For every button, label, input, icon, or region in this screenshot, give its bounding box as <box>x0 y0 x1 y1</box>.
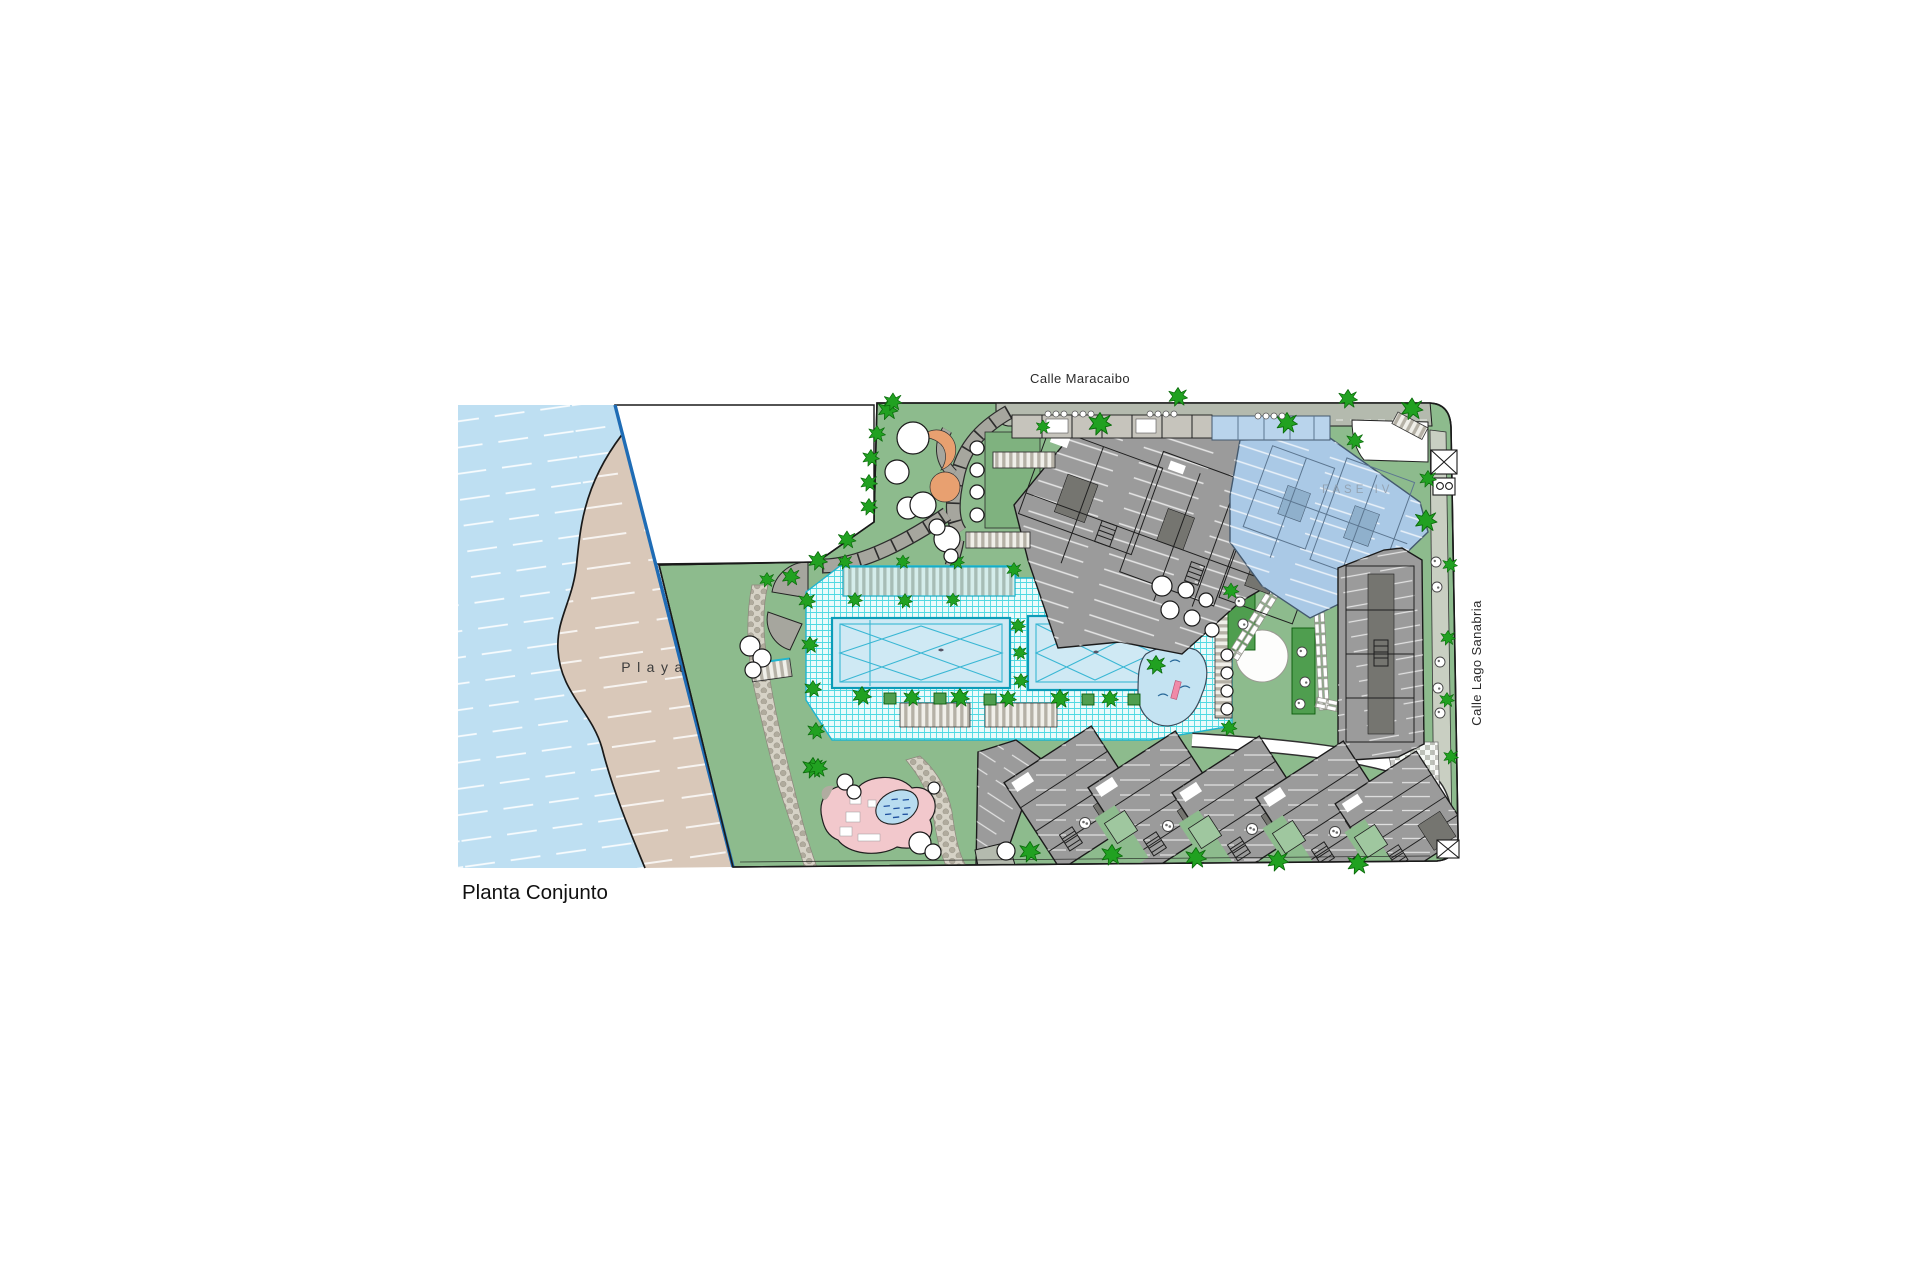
site-plan-drawing: Calle Maracaibo Calle Lago Sanabria Play… <box>0 0 1920 1280</box>
drawing-title: Planta Conjunto <box>462 881 608 904</box>
building-cluster-east <box>1338 548 1424 760</box>
street-label-right: Calle Lago Sanabria <box>1469 600 1484 726</box>
phase-label: FASE IV <box>1322 484 1393 496</box>
main-pool <box>832 618 1010 688</box>
beach-label: Playa <box>621 659 689 675</box>
site-plan-page: Calle Maracaibo Calle Lago Sanabria Play… <box>0 0 1920 1280</box>
street-label-top: Calle Maracaibo <box>1030 371 1130 386</box>
vacant-lot <box>615 405 874 564</box>
